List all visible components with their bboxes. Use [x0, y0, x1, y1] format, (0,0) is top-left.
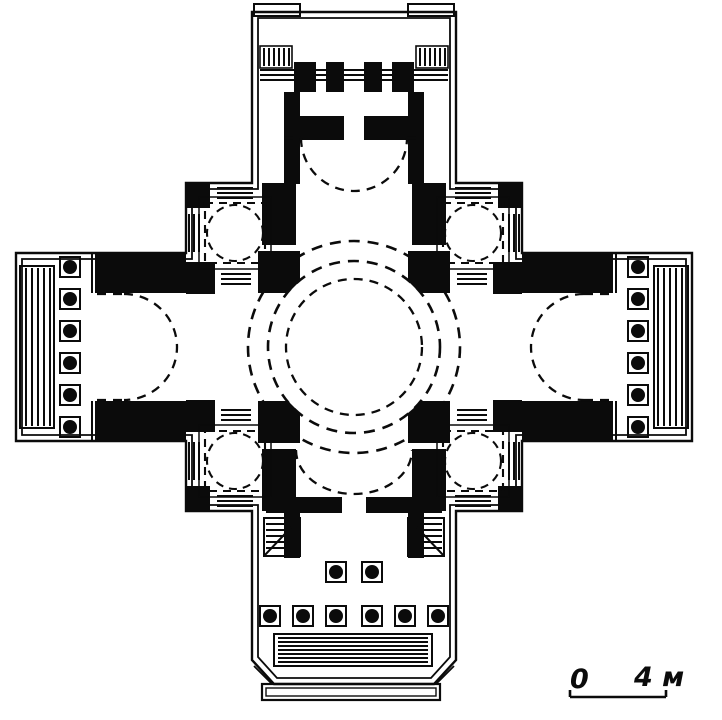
west-portico — [20, 257, 80, 437]
column-pedestal — [428, 606, 448, 626]
south-vault-arc — [296, 450, 412, 494]
south-plinth — [262, 684, 440, 700]
north-pronaos-pier — [364, 62, 382, 92]
north-anta-flutes — [264, 48, 289, 66]
drawing-canvas: 0 4 м — [0, 0, 722, 720]
column-pedestal — [60, 289, 80, 309]
east-columns — [628, 257, 648, 437]
column-pedestal — [60, 353, 80, 373]
floor-plan: 0 4 м — [0, 0, 722, 720]
column-pedestal — [326, 606, 346, 626]
column-pedestal — [60, 417, 80, 437]
north-cross-wall — [364, 116, 424, 140]
central-block-walls — [186, 183, 522, 511]
crossing-pier — [258, 401, 300, 443]
corner-dome-circle — [207, 205, 263, 261]
north-anta-notch — [254, 4, 300, 16]
west-steps — [26, 268, 50, 426]
column-pedestal — [326, 562, 346, 582]
column-pedestal — [628, 257, 648, 277]
north-pronaos-pier — [294, 62, 316, 92]
column-pedestal — [362, 606, 382, 626]
south-steps — [278, 638, 428, 662]
column-pedestal — [628, 417, 648, 437]
corner-dome-circle — [207, 433, 263, 489]
scale-zero-label: 0 — [570, 664, 589, 695]
south-door-wall — [266, 497, 342, 513]
east-conch-arc — [531, 294, 611, 400]
column-pedestal — [60, 321, 80, 341]
south-plinth-inner — [266, 688, 436, 696]
west-conch-arc — [97, 294, 177, 400]
north-entablature-bands — [260, 70, 448, 80]
column-pedestal — [362, 562, 382, 582]
column-pedestal — [628, 321, 648, 341]
column-pedestal — [260, 606, 280, 626]
south-inner-columns — [326, 562, 382, 582]
north-porch — [254, 4, 454, 184]
column-pedestal — [395, 606, 415, 626]
north-cross-wall — [284, 116, 344, 140]
north-pronaos-pier — [392, 62, 414, 92]
column-pedestal — [628, 353, 648, 373]
east-steps — [658, 268, 682, 426]
east-portico — [628, 257, 688, 437]
south-outer-columns — [260, 606, 448, 626]
corner-dome-circle — [445, 433, 501, 489]
column-pedestal — [60, 257, 80, 277]
south-door-wall — [366, 497, 442, 513]
column-pedestal — [628, 385, 648, 405]
column-pedestal — [60, 385, 80, 405]
scale-bar: 0 4 м — [570, 662, 684, 697]
north-conch-arc — [284, 138, 424, 191]
south-portico — [254, 497, 454, 700]
north-anta-notch — [408, 4, 454, 16]
arm-flank-walls — [92, 253, 616, 441]
crossing-pier — [258, 251, 300, 293]
column-pedestal — [628, 289, 648, 309]
column-pedestal — [293, 606, 313, 626]
corner-dome-circle — [445, 205, 501, 261]
south-flare-lines — [254, 666, 454, 684]
crossing-pier — [408, 251, 450, 293]
north-pronaos-pier — [326, 62, 344, 92]
scale-length-label: 4 м — [633, 662, 684, 693]
outer-walls — [16, 12, 692, 684]
north-anta-flutes — [420, 48, 445, 66]
west-columns — [60, 257, 80, 437]
